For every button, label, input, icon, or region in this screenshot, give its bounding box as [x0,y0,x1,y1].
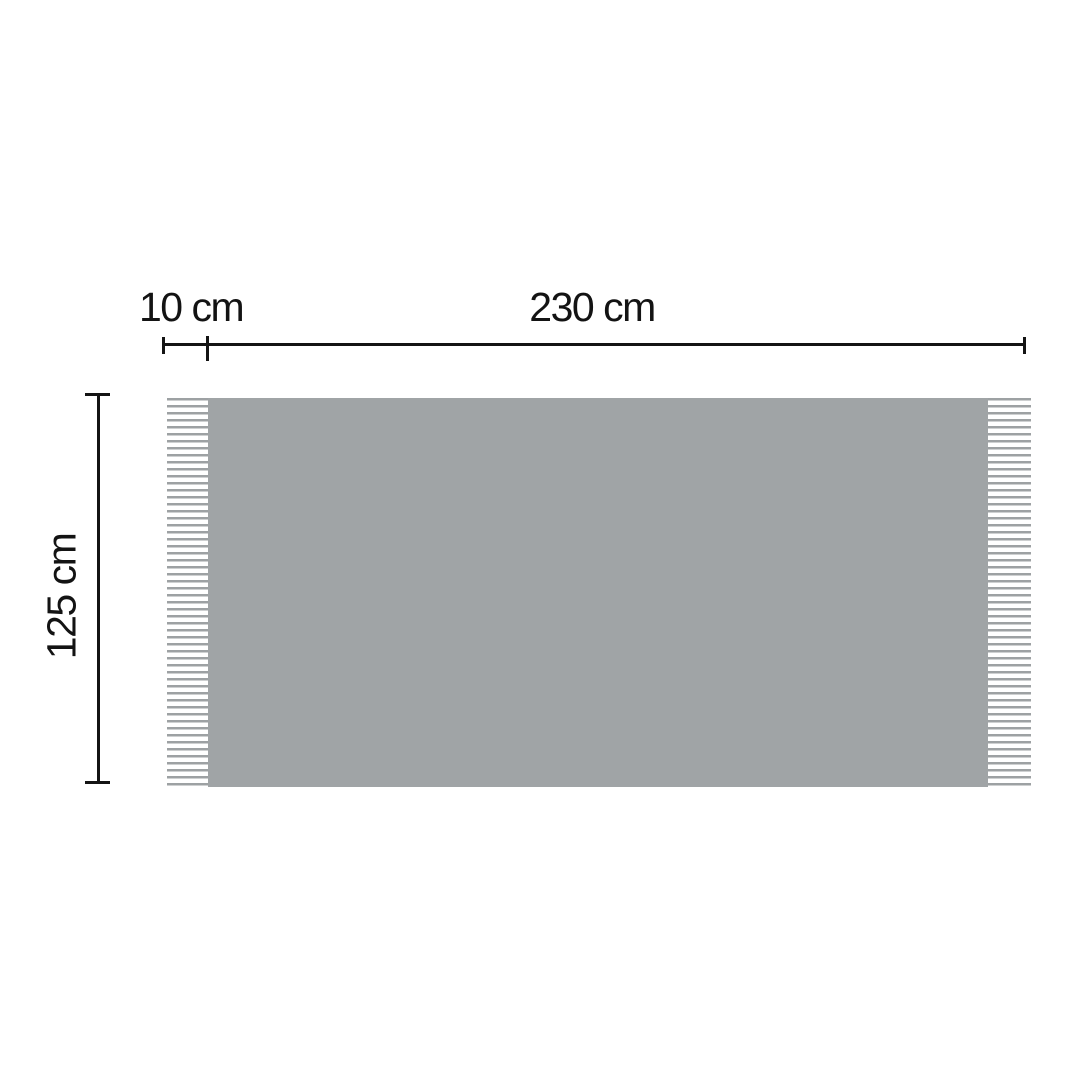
dimension-tick-left [162,337,165,354]
height-dimension-line [97,394,100,783]
height-tick-top [85,393,110,396]
left-fringe [167,398,208,787]
height-tick-bottom [85,781,110,784]
dimension-diagram: 10 cm 230 cm 125 cm [0,0,1080,1080]
dimension-tick-right [1023,337,1026,354]
blanket-body [208,398,988,787]
height-label: 125 cm [42,497,83,697]
right-fringe [988,398,1031,787]
total-width-dimension-line [163,343,1026,346]
dimension-tick-fringe-boundary [206,336,209,361]
total-width-label: 230 cm [492,287,692,328]
fringe-width-label: 10 cm [139,287,239,328]
